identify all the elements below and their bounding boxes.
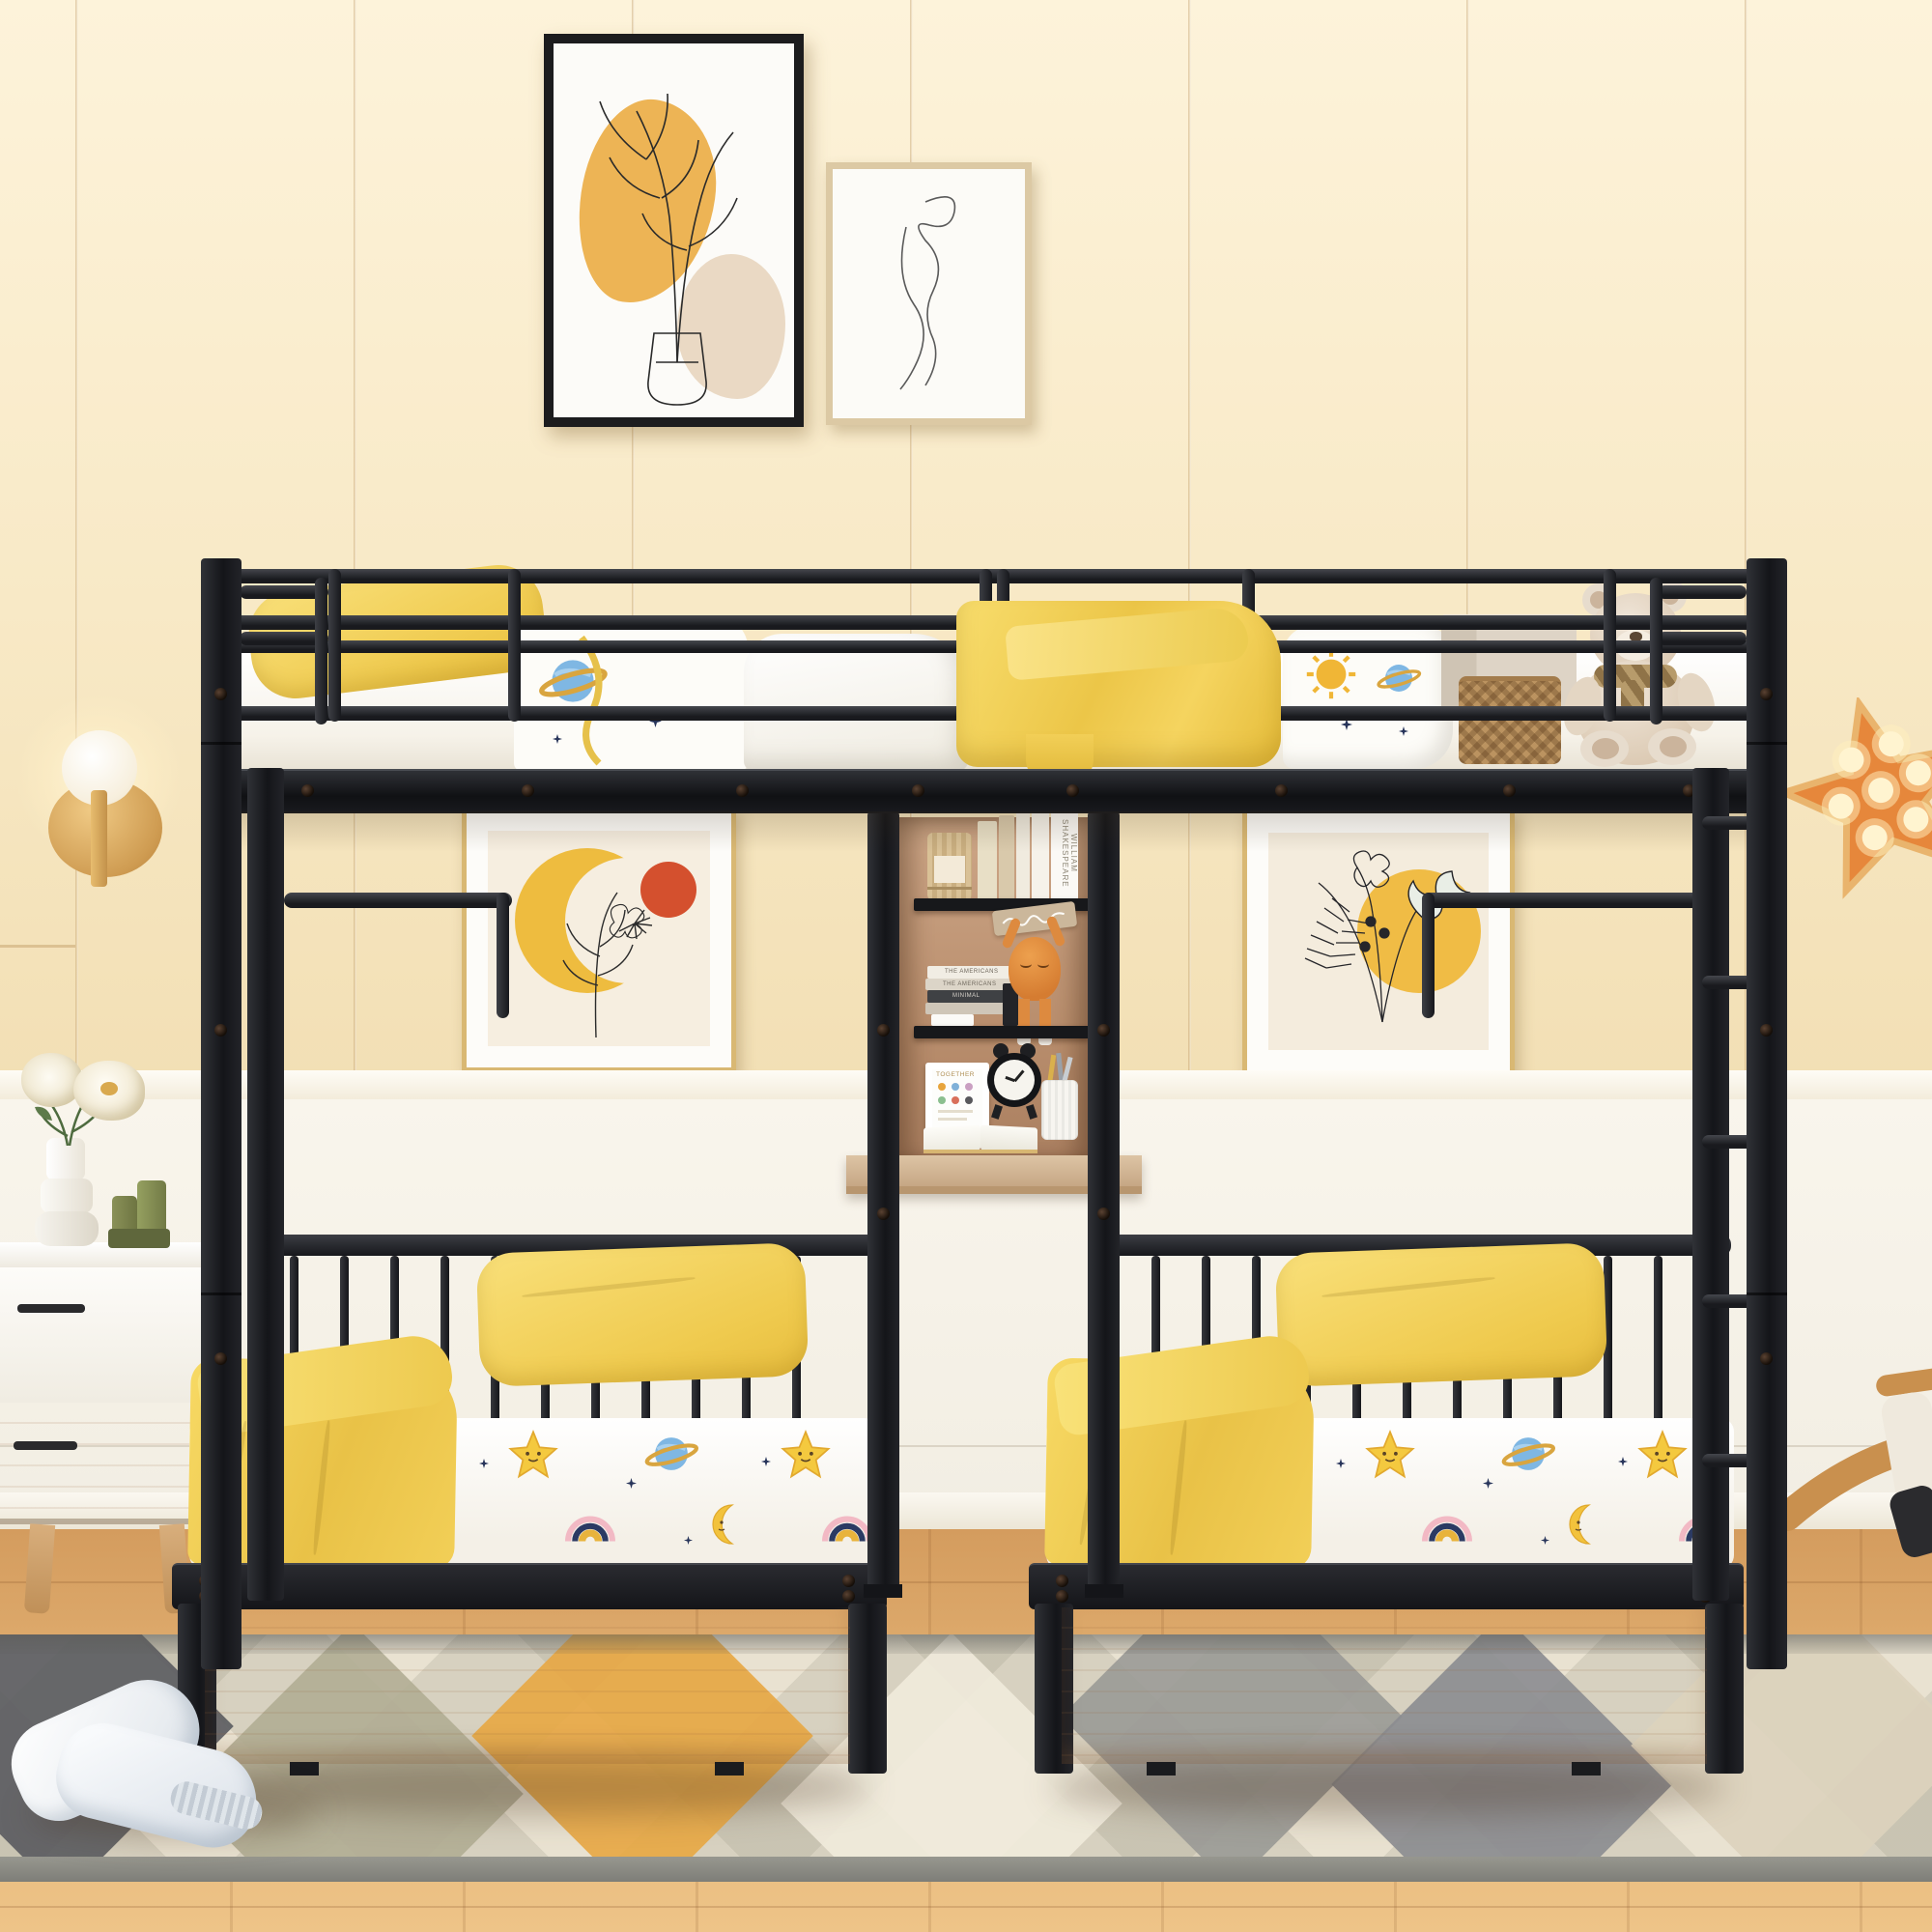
end-handle [1658,632,1747,645]
drawer-foot [1147,1762,1176,1776]
flower-center [100,1082,118,1095]
end-handle-post [315,578,327,724]
headboard-spindle [1654,1256,1662,1422]
bolt [877,1207,890,1220]
star-marquee-lamp [1776,697,1932,900]
small-box [931,1014,974,1026]
canopy-post-left [497,893,509,1018]
rocking-toy [1768,1343,1932,1652]
right-bed-base-rail [1029,1563,1744,1609]
bolt [1760,1024,1773,1037]
teddy-bear [1565,576,1719,769]
bed-post-inner-right [1692,768,1729,1601]
nightstand-drawer-white [0,1267,220,1403]
guardrail-tube [220,569,1766,583]
flower-white [21,1053,83,1107]
bolt [1760,1352,1773,1365]
drawer-handle [14,1441,77,1450]
bolt [1056,1590,1068,1603]
left-bed-leg [848,1604,887,1774]
pen-cup [1041,1080,1078,1140]
candle-green [108,1229,170,1248]
bolt [522,784,534,797]
left-bed-pillow [476,1242,810,1387]
guardrail-post [508,569,521,722]
tower-foot [1085,1584,1123,1598]
tower-foot [864,1584,902,1598]
post-joint [1747,742,1787,745]
shelf-tower-post [867,811,899,1594]
right-bed-leg [1705,1604,1744,1774]
stacked-book: MINIMAL [927,990,1014,1003]
stacked-book: THE AMERICANS [925,979,1014,990]
post-joint [201,1293,241,1295]
wall-seam [1188,0,1191,1101]
beam-shadow [241,811,1748,852]
guardrail-post [1604,569,1616,722]
book-title-text: THE AMERICANS [943,981,997,987]
post-joint [201,742,241,745]
bolt [214,1352,227,1365]
open-book [923,1122,1037,1155]
poster-line-figure [833,169,1025,418]
canopy-rail-left [284,893,512,908]
book-title-text: MINIMAL [952,993,980,999]
bolt [842,1575,855,1587]
bolt [1066,784,1079,797]
poster-botanical-frame [544,34,804,427]
bolt [301,784,314,797]
bed-post-inner-left [247,768,284,1601]
poster-figure-frame [826,162,1032,425]
drawer-foot [715,1762,744,1776]
shelf-board [914,1026,1090,1038]
poster-line-art-plant [554,43,794,417]
stacked-book [925,1003,1014,1014]
bolt [214,688,227,700]
bed-post-left [201,558,241,1669]
drawer-handle [17,1304,85,1313]
bolt [1503,784,1516,797]
bolt [736,784,749,797]
alarm-clock [987,1043,1041,1126]
vase [35,1138,99,1246]
plush-character [1009,937,1061,1001]
bolt [1760,688,1773,700]
right-bed-storage-drawer [1062,1607,1707,1764]
bolt [1097,1024,1110,1037]
top-bunk-beam [201,769,1785,813]
canopy-rail-right [1422,893,1712,908]
end-handle-post [1650,578,1662,724]
canopy-post-right [1422,893,1435,1018]
wall-seam [354,0,356,1101]
guardrail-post [328,569,341,722]
bolt [214,1024,227,1037]
drawer-foot [1572,1762,1601,1776]
nightstand-leg [24,1523,55,1614]
end-handle [1658,585,1747,599]
bed-post-right [1747,558,1787,1669]
moon-art-plant-lines [488,831,710,1046]
rug-edge-bottom [0,1857,1932,1882]
drawer-foot [290,1762,319,1776]
top-bunk-sheet-bundle [744,634,968,771]
bedroom-scene: WILLIAM SHAKESPEARE THE AMERICANS THE AM… [0,0,1932,1932]
wall-seam [75,0,78,1101]
bolt [912,784,924,797]
bolt [842,1590,855,1603]
wall-seam-horizontal [0,945,75,948]
left-bed-storage-drawer [205,1607,850,1764]
bolt [877,1024,890,1037]
bolt [1275,784,1288,797]
flower-art-bouquet [1268,833,1489,1050]
nightstand-drawer-wood [0,1403,220,1520]
stacked-book: THE AMERICANS [927,966,1014,979]
shelf-tower-post [1088,811,1120,1594]
frame-caption-text: TOGETHER [936,1071,975,1078]
post-joint [1747,1293,1787,1295]
sconce-stem [91,790,107,887]
book-title-text: THE AMERICANS [945,969,999,975]
bolt [1056,1575,1068,1587]
right-bed-pillow [1275,1242,1608,1387]
bolt [1097,1207,1110,1220]
